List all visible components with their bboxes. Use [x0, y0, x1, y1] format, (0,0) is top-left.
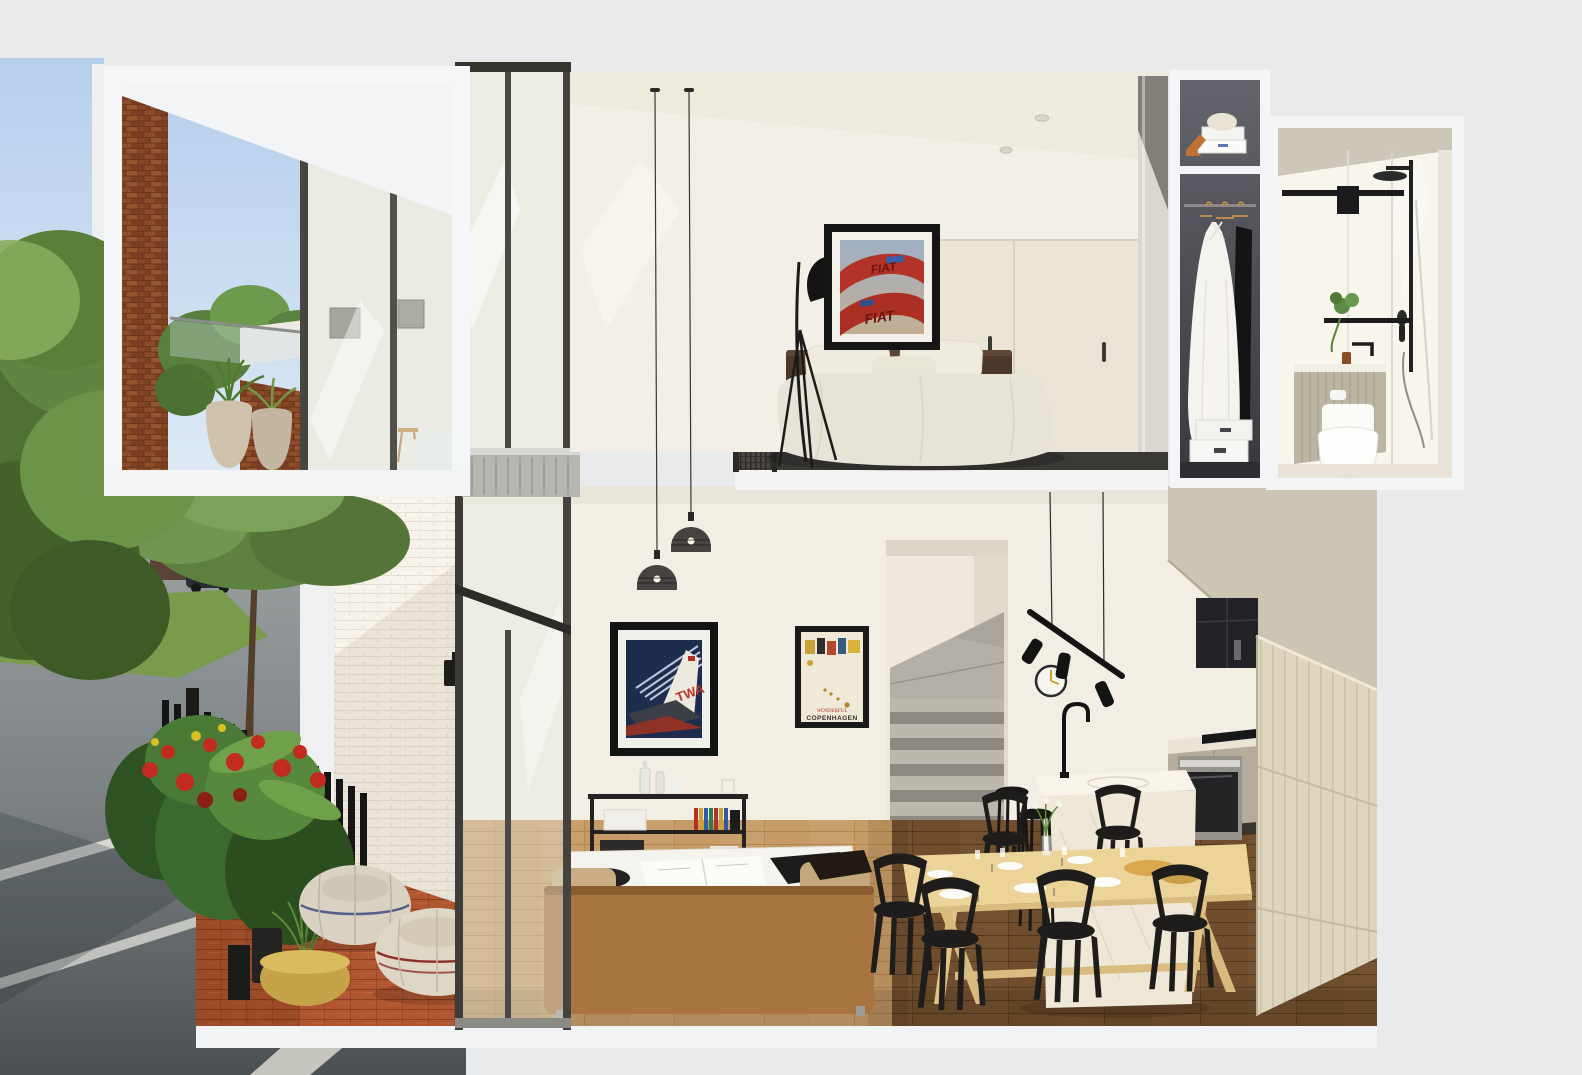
planter-box	[462, 448, 580, 497]
poster-twa: TWA	[610, 622, 718, 756]
upper-cabinet	[1196, 598, 1258, 668]
wardrobe	[1170, 70, 1270, 488]
shower-head-icon	[1373, 171, 1407, 181]
lower-floor: TWA WONDERFUL COPENHAGEN	[462, 486, 1377, 1026]
toilet-paper	[1330, 390, 1346, 400]
downlight-icon-2	[1000, 147, 1012, 153]
balcony-terrace	[104, 66, 470, 496]
colorful-books	[694, 808, 728, 830]
apartment-cutaway-render: TWA WONDERFUL COPENHAGEN	[0, 0, 1582, 1075]
bedroom-loft: FIAT FIAT	[570, 72, 1168, 471]
balcony-sill	[104, 470, 470, 496]
tall-glazing	[455, 62, 571, 1030]
hanging-rail	[1184, 204, 1256, 207]
mirror-panel	[1138, 76, 1168, 452]
brick-column	[122, 84, 168, 476]
storage-boxes	[1190, 420, 1252, 462]
white-books	[604, 810, 646, 830]
downlight-icon	[1035, 115, 1049, 121]
wall-speaker	[1337, 186, 1359, 214]
loft-fascia	[735, 470, 1168, 490]
vanity-top	[1294, 364, 1386, 372]
poster-copenhagen: WONDERFUL COPENHAGEN	[795, 626, 869, 728]
black-pot-2	[228, 945, 250, 1000]
bathroom	[1266, 116, 1464, 490]
poster-copenhagen-text: COPENHAGEN	[806, 715, 857, 722]
hat	[1207, 113, 1237, 131]
staircase	[886, 540, 1008, 828]
poster-fiat: FIAT FIAT	[824, 224, 940, 350]
poster-copenhagen-script: WONDERFUL	[817, 709, 847, 714]
tall-panelling	[1256, 636, 1377, 1016]
cut-strip-patio	[196, 1026, 466, 1048]
